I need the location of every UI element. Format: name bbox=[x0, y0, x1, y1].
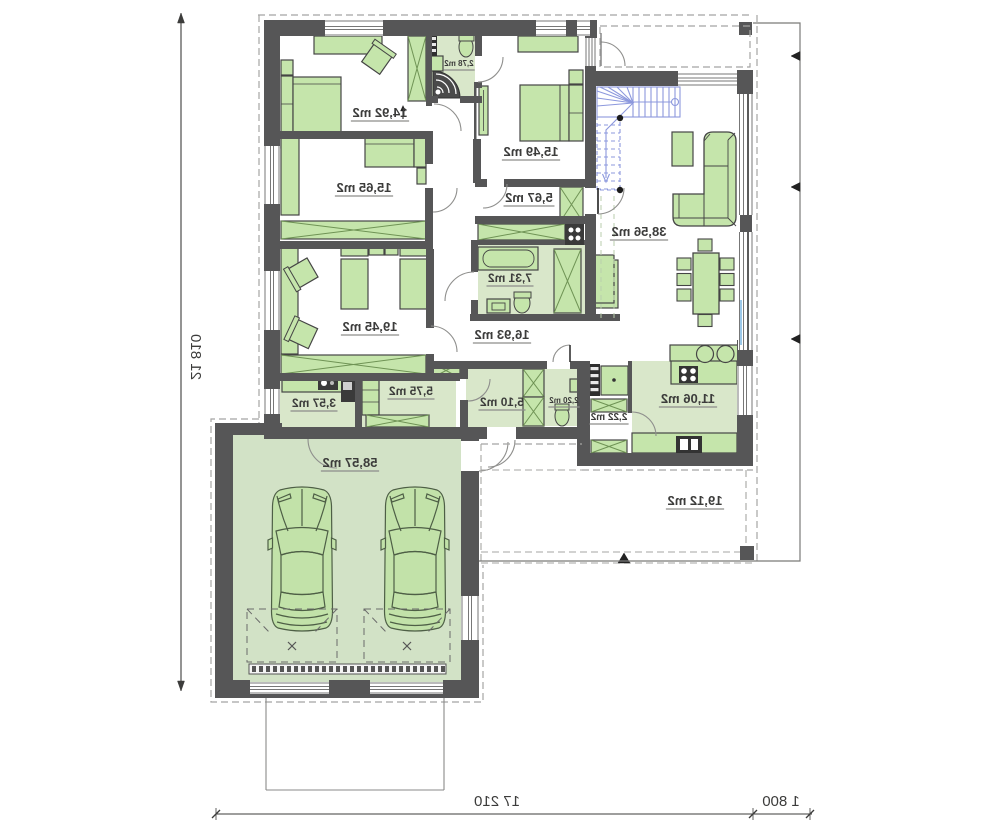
svg-text:2,20 m2: 2,20 m2 bbox=[549, 396, 579, 405]
svg-text:3,57 m2: 3,57 m2 bbox=[292, 396, 336, 410]
svg-text:5,67 m2: 5,67 m2 bbox=[505, 190, 553, 205]
svg-text:2,78 m2: 2,78 m2 bbox=[444, 59, 474, 68]
svg-text:11,06 m2: 11,06 m2 bbox=[661, 391, 715, 406]
svg-text:38,56 m2: 38,56 m2 bbox=[612, 224, 667, 239]
svg-text:14,92 m2: 14,92 m2 bbox=[353, 105, 408, 120]
svg-text:2,22 m2: 2,22 m2 bbox=[590, 412, 627, 423]
svg-text:19,45 m2: 19,45 m2 bbox=[343, 319, 398, 334]
svg-text:19,12 m2: 19,12 m2 bbox=[668, 493, 723, 508]
svg-text:21 810: 21 810 bbox=[187, 334, 204, 380]
svg-text:58,57 m2: 58,57 m2 bbox=[323, 455, 378, 470]
svg-text:1 800: 1 800 bbox=[762, 793, 800, 810]
svg-text:16,93 m2: 16,93 m2 bbox=[475, 327, 530, 342]
svg-text:7,31 m2: 7,31 m2 bbox=[488, 271, 532, 285]
svg-text:15,49 m2: 15,49 m2 bbox=[504, 144, 559, 159]
svg-text:5,10 m2: 5,10 m2 bbox=[480, 395, 524, 409]
svg-text:17 210: 17 210 bbox=[474, 793, 520, 810]
svg-text:5,75 m2: 5,75 m2 bbox=[389, 384, 433, 398]
svg-text:15,65 m2: 15,65 m2 bbox=[337, 180, 392, 195]
